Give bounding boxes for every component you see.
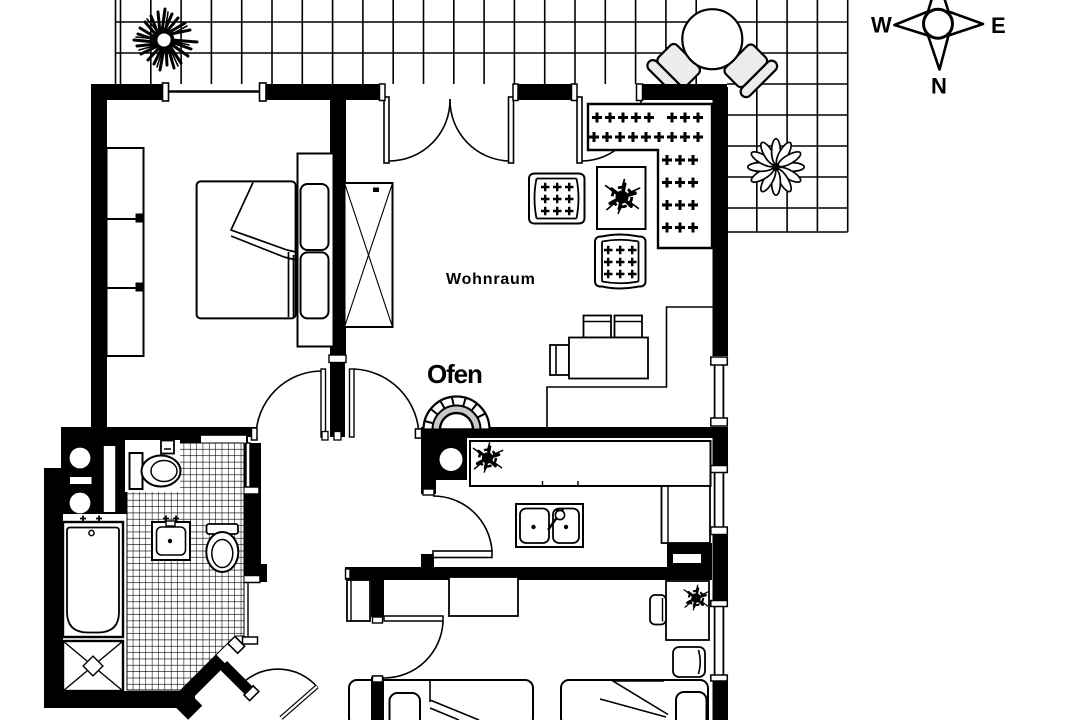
svg-text:N: N <box>931 74 947 99</box>
svg-text:Wohnraum: Wohnraum <box>446 271 536 288</box>
svg-text:E: E <box>991 13 1006 38</box>
svg-text:W: W <box>871 13 892 38</box>
svg-text:Ofen: Ofen <box>427 359 482 389</box>
